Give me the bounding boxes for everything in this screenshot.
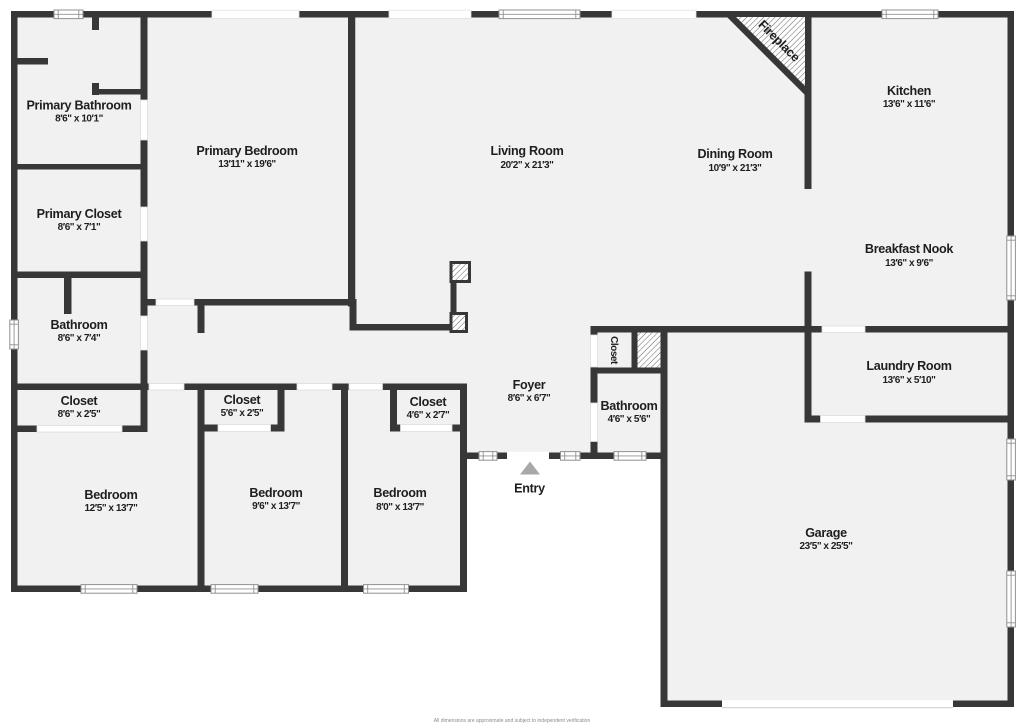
svg-text:Closet: Closet <box>224 393 262 407</box>
svg-text:Garage: Garage <box>805 526 847 540</box>
svg-text:10′9" x 21′3": 10′9" x 21′3" <box>709 163 763 174</box>
svg-text:23′5" x 25′5": 23′5" x 25′5" <box>800 541 854 552</box>
svg-text:8′6" x 7′1": 8′6" x 7′1" <box>58 222 101 233</box>
svg-text:Breakfast Nook: Breakfast Nook <box>865 242 954 256</box>
svg-text:4′6" x 5′6": 4′6" x 5′6" <box>608 414 651 425</box>
svg-text:All dimensions are approximate: All dimensions are approximate and subje… <box>434 718 591 724</box>
svg-text:13′6" x 9′6": 13′6" x 9′6" <box>885 258 934 269</box>
svg-text:20′2" x 21′3": 20′2" x 21′3" <box>501 160 555 171</box>
svg-text:Entry: Entry <box>514 482 545 496</box>
svg-text:Primary Bathroom: Primary Bathroom <box>26 99 131 113</box>
svg-text:Bedroom: Bedroom <box>249 486 302 500</box>
svg-text:12′5" x 13′7": 12′5" x 13′7" <box>85 503 139 514</box>
svg-text:8′6" x 2′5": 8′6" x 2′5" <box>58 409 101 420</box>
svg-text:Primary Bedroom: Primary Bedroom <box>196 144 297 158</box>
svg-text:Bathroom: Bathroom <box>50 318 107 332</box>
svg-text:Bedroom: Bedroom <box>84 488 137 502</box>
svg-text:5′6" x 2′5": 5′6" x 2′5" <box>221 408 264 419</box>
svg-text:13′11" x 19′6": 13′11" x 19′6" <box>218 159 276 170</box>
svg-text:8′6" x 10′1": 8′6" x 10′1" <box>55 114 104 125</box>
svg-text:Primary Closet: Primary Closet <box>37 207 123 221</box>
svg-text:Laundry Room: Laundry Room <box>866 359 951 373</box>
svg-text:Closet: Closet <box>608 336 619 365</box>
svg-text:13′6" x 5′10": 13′6" x 5′10" <box>883 375 937 386</box>
svg-text:8′0" x 13′7": 8′0" x 13′7" <box>376 502 425 513</box>
svg-text:13′6" x 11′6": 13′6" x 11′6" <box>883 99 936 110</box>
svg-text:Living Room: Living Room <box>491 144 564 158</box>
svg-text:4′6" x 2′7": 4′6" x 2′7" <box>407 410 450 421</box>
svg-text:Bathroom: Bathroom <box>600 399 657 413</box>
svg-text:8′6" x 7′4": 8′6" x 7′4" <box>58 333 101 344</box>
svg-text:Closet: Closet <box>61 394 99 408</box>
svg-text:Closet: Closet <box>410 395 448 409</box>
svg-text:Kitchen: Kitchen <box>887 84 931 98</box>
svg-text:Dining Room: Dining Room <box>697 147 772 161</box>
svg-text:Bedroom: Bedroom <box>373 486 426 500</box>
svg-text:Foyer: Foyer <box>513 378 546 392</box>
svg-text:9′6" x 13′7": 9′6" x 13′7" <box>252 501 301 512</box>
svg-text:8′6" x 6′7": 8′6" x 6′7" <box>508 393 551 404</box>
